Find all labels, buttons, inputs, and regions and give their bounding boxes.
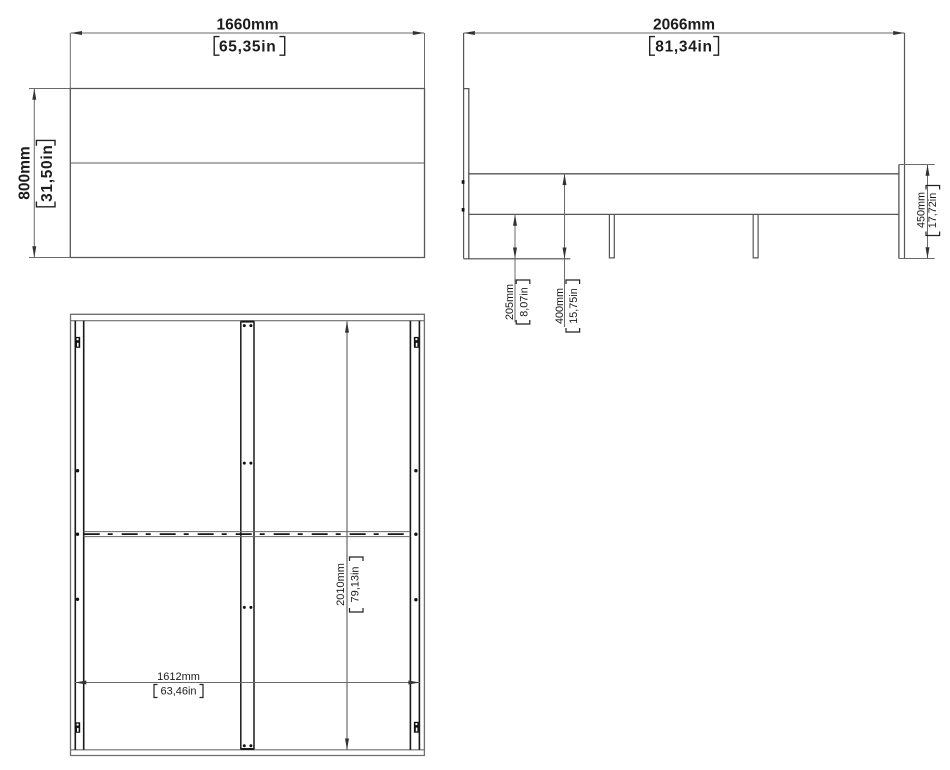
svg-text:31,50in: 31,50in	[39, 144, 56, 201]
svg-text:65,35in: 65,35in	[219, 38, 276, 55]
svg-text:79,13in: 79,13in	[350, 566, 362, 602]
svg-text:450mm: 450mm	[916, 192, 928, 228]
svg-text:81,34in: 81,34in	[655, 38, 712, 55]
svg-text:2010mm: 2010mm	[335, 563, 347, 606]
svg-text:1660mm: 1660mm	[216, 17, 278, 34]
svg-text:1612mm: 1612mm	[157, 671, 200, 683]
svg-text:15,75in: 15,75in	[568, 288, 580, 323]
svg-text:800mm: 800mm	[16, 146, 33, 199]
svg-text:8,07in: 8,07in	[518, 287, 530, 316]
svg-text:17,72in: 17,72in	[927, 193, 939, 228]
svg-text:63,46in: 63,46in	[160, 686, 196, 698]
svg-text:205mm: 205mm	[504, 284, 516, 320]
svg-text:400mm: 400mm	[554, 288, 566, 324]
svg-text:2066mm: 2066mm	[653, 17, 715, 34]
